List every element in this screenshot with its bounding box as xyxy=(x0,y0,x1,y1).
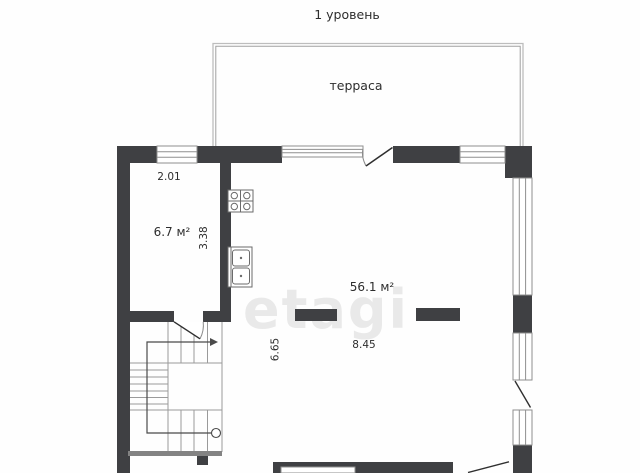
window-top-left xyxy=(157,146,197,163)
kitchen-width-dim: 2.01 xyxy=(157,171,180,183)
wall-stair-tab xyxy=(197,456,208,465)
page-title: 1 уровень xyxy=(314,7,380,22)
kitchen-depth-dim: 3.38 xyxy=(198,226,210,249)
stove-icon xyxy=(228,190,253,212)
living-width-dim: 8.45 xyxy=(352,339,375,351)
counter-block-right xyxy=(416,308,460,321)
stair-base-band xyxy=(128,451,222,456)
living-area-label: 56.1 м² xyxy=(350,280,395,294)
wall-right-pier xyxy=(513,295,532,333)
window-right-middle xyxy=(513,333,532,380)
wall-top-mid xyxy=(197,146,282,163)
window-terrace-sliding xyxy=(282,146,363,157)
background xyxy=(0,0,640,473)
wall-kitchen-bottom-right xyxy=(203,311,231,322)
floor-plan-page: etagi терраса xyxy=(0,0,640,473)
window-bottom xyxy=(281,467,355,473)
window-right-upper xyxy=(513,178,532,295)
window-top-right xyxy=(460,146,505,163)
window-right-lower xyxy=(513,410,532,445)
sink-icon xyxy=(228,247,252,287)
stair-start-marker xyxy=(212,429,221,438)
wall-corner-top-right xyxy=(505,146,532,178)
kitchen-area-label: 6.7 м² xyxy=(154,225,191,239)
wall-top-right xyxy=(393,146,460,163)
living-depth-dim: 6.65 xyxy=(270,338,282,361)
wall-kitchen-right xyxy=(220,163,231,322)
counter-block-left xyxy=(295,309,337,321)
wall-kitchen-bottom-left xyxy=(117,311,174,322)
wall-left xyxy=(117,146,130,473)
floor-plan-canvas: etagi терраса xyxy=(0,0,640,473)
wall-corner-bottom-right xyxy=(513,445,532,473)
terrace-label: терраса xyxy=(329,78,382,93)
